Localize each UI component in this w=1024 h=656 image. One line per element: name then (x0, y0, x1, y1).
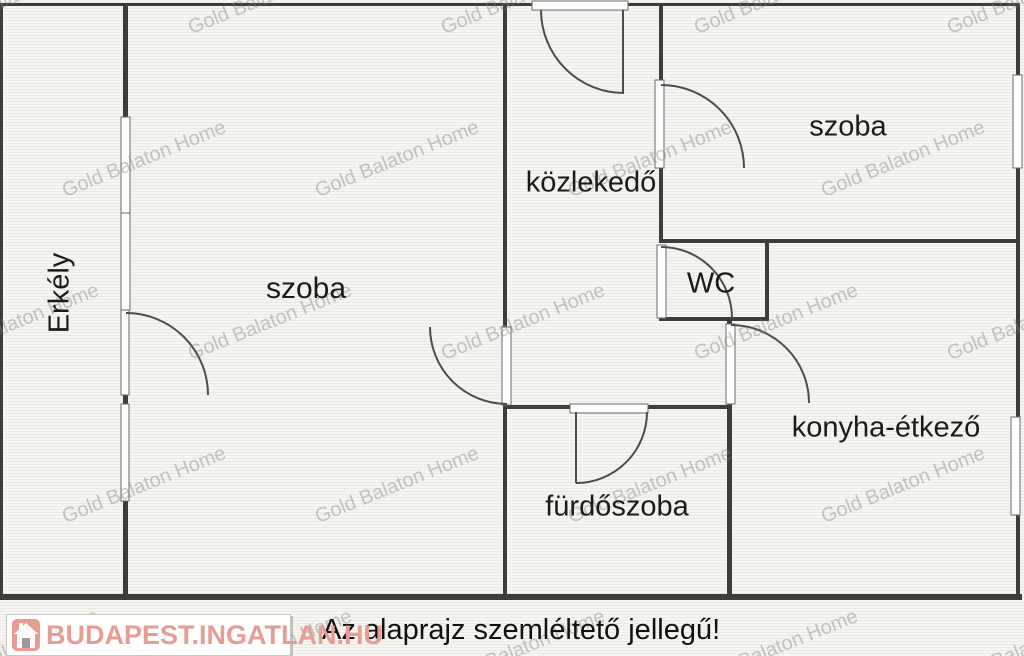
door-arc-furdoszoba (576, 412, 647, 483)
room-label-erkely: Erkély (44, 253, 77, 334)
wall-left (0, 3, 3, 597)
door-opening-szoba (502, 327, 511, 405)
door-arc-szoba (430, 327, 507, 404)
room-label-konyha-etkezo: konyha-étkező (792, 412, 981, 445)
window-balcony-1 (121, 117, 130, 213)
logo-text: BUDAPEST.INGATLAN.HU (46, 620, 383, 651)
door-opening-entrance (532, 1, 628, 10)
door-opening-furdoszoba (570, 404, 648, 413)
room-label-kozlekedo: közlekedő (526, 167, 657, 200)
floorplan-image: Gold Balaton HomeGold Balaton HomeGold B… (0, 0, 1024, 656)
budapest-ingatlan-logo: BUDAPEST.INGATLAN.HU (6, 614, 291, 656)
door-opening-szoba2 (655, 80, 664, 168)
window-szoba-right (1013, 75, 1022, 168)
door-arc-szoba2 (661, 85, 744, 168)
room-label-szoba-right: szoba (809, 111, 886, 144)
wall-wc-bottom (659, 317, 769, 321)
wall-bottom (0, 594, 1022, 600)
wall-szoba2-bottom (659, 239, 1020, 243)
door-opening-balcony (121, 310, 129, 395)
window-konyha (1011, 417, 1020, 515)
room-label-furdoszoba: fürdőszoba (545, 491, 689, 524)
door-arc-entrance (541, 10, 624, 93)
door-opening-wc (657, 245, 666, 318)
wall-furdoszoba-right (727, 405, 732, 594)
door-opening-konyha (726, 324, 735, 404)
wall-top (0, 3, 1020, 6)
window-balcony-3 (121, 404, 129, 501)
floorplan-drawing (0, 0, 1024, 656)
wall-szoba-right (503, 3, 507, 594)
door-arc-balcony (126, 313, 208, 395)
wall-wc-right (765, 243, 769, 321)
room-label-wc: WC (687, 268, 735, 301)
window-balcony-2 (121, 213, 130, 310)
house-icon (12, 619, 40, 651)
room-label-szoba-left: szoba (266, 272, 346, 306)
door-arc-konyha (731, 325, 809, 403)
